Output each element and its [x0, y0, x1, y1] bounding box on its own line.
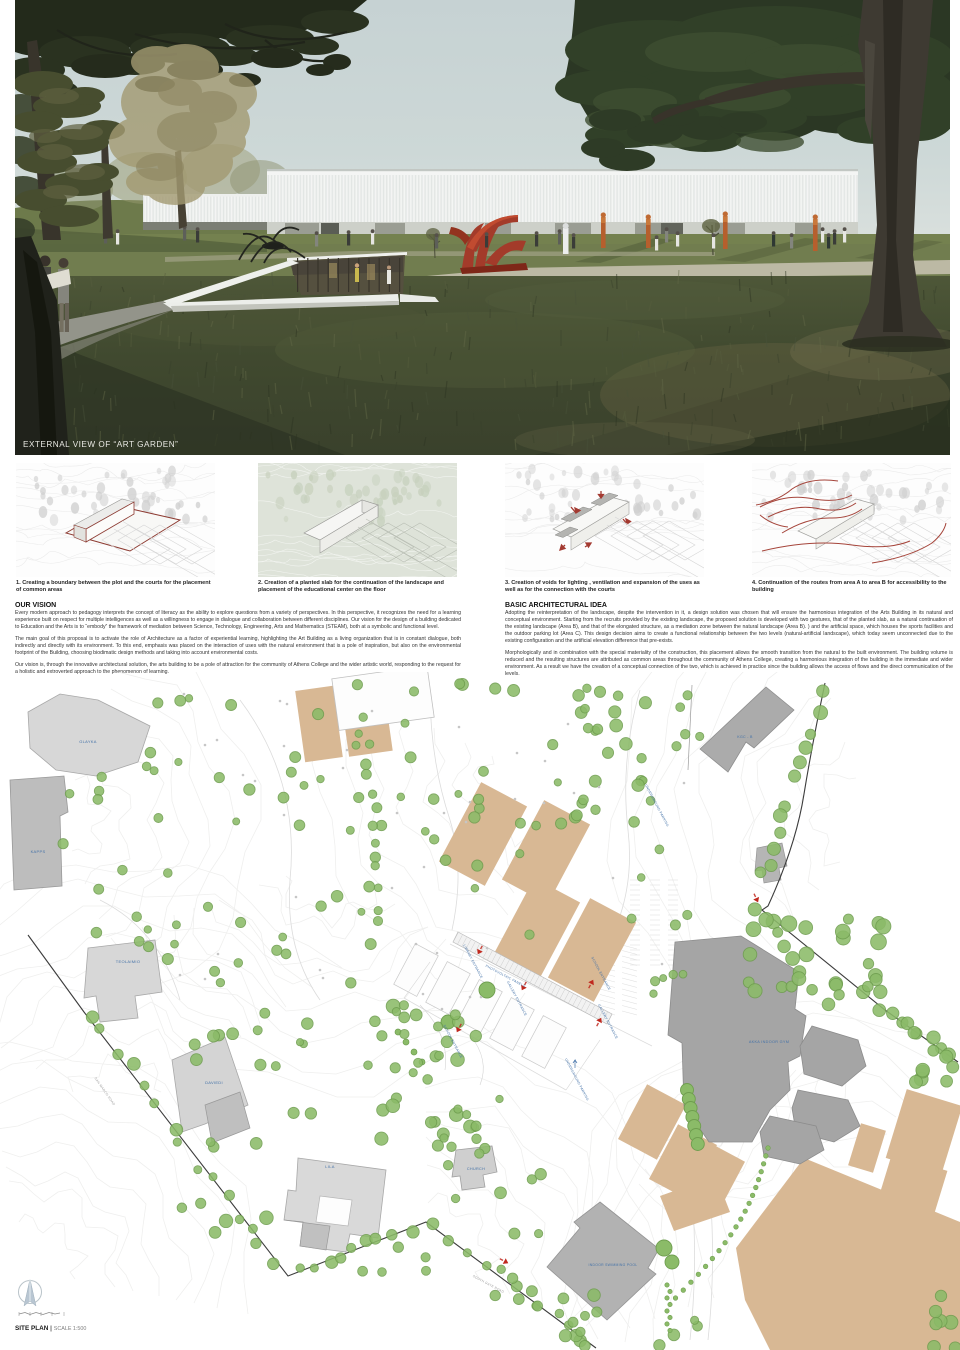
- svg-text:INDOOR SWIMMING POOL: INDOOR SWIMMING POOL: [589, 1263, 638, 1267]
- svg-text:UNDERGROUND PARKING: UNDERGROUND PARKING: [644, 784, 670, 828]
- svg-text:LILA: LILA: [325, 1164, 334, 1169]
- svg-text:AKKA INDOOR GYM: AKKA INDOOR GYM: [749, 1040, 789, 1044]
- svg-text:GLAYKA: GLAYKA: [79, 739, 97, 744]
- svg-text:UNDERGROUND PARKING: UNDERGROUND PARKING: [564, 1058, 590, 1102]
- svg-text:TEOLAIMIO: TEOLAIMIO: [116, 959, 140, 964]
- svg-text:KAPPS: KAPPS: [31, 849, 46, 854]
- svg-text:KGC - B: KGC - B: [737, 735, 753, 739]
- svg-text:DAVIEDI: DAVIEDI: [205, 1080, 223, 1085]
- svg-text:CHURCH: CHURCH: [467, 1167, 485, 1171]
- svg-text:EXTERNAL VIEW OF “ART GARDEN”: EXTERNAL VIEW OF “ART GARDEN”: [23, 440, 178, 449]
- svg-text:SITE PLAN | SCALE 1:500: SITE PLAN | SCALE 1:500: [15, 1325, 86, 1332]
